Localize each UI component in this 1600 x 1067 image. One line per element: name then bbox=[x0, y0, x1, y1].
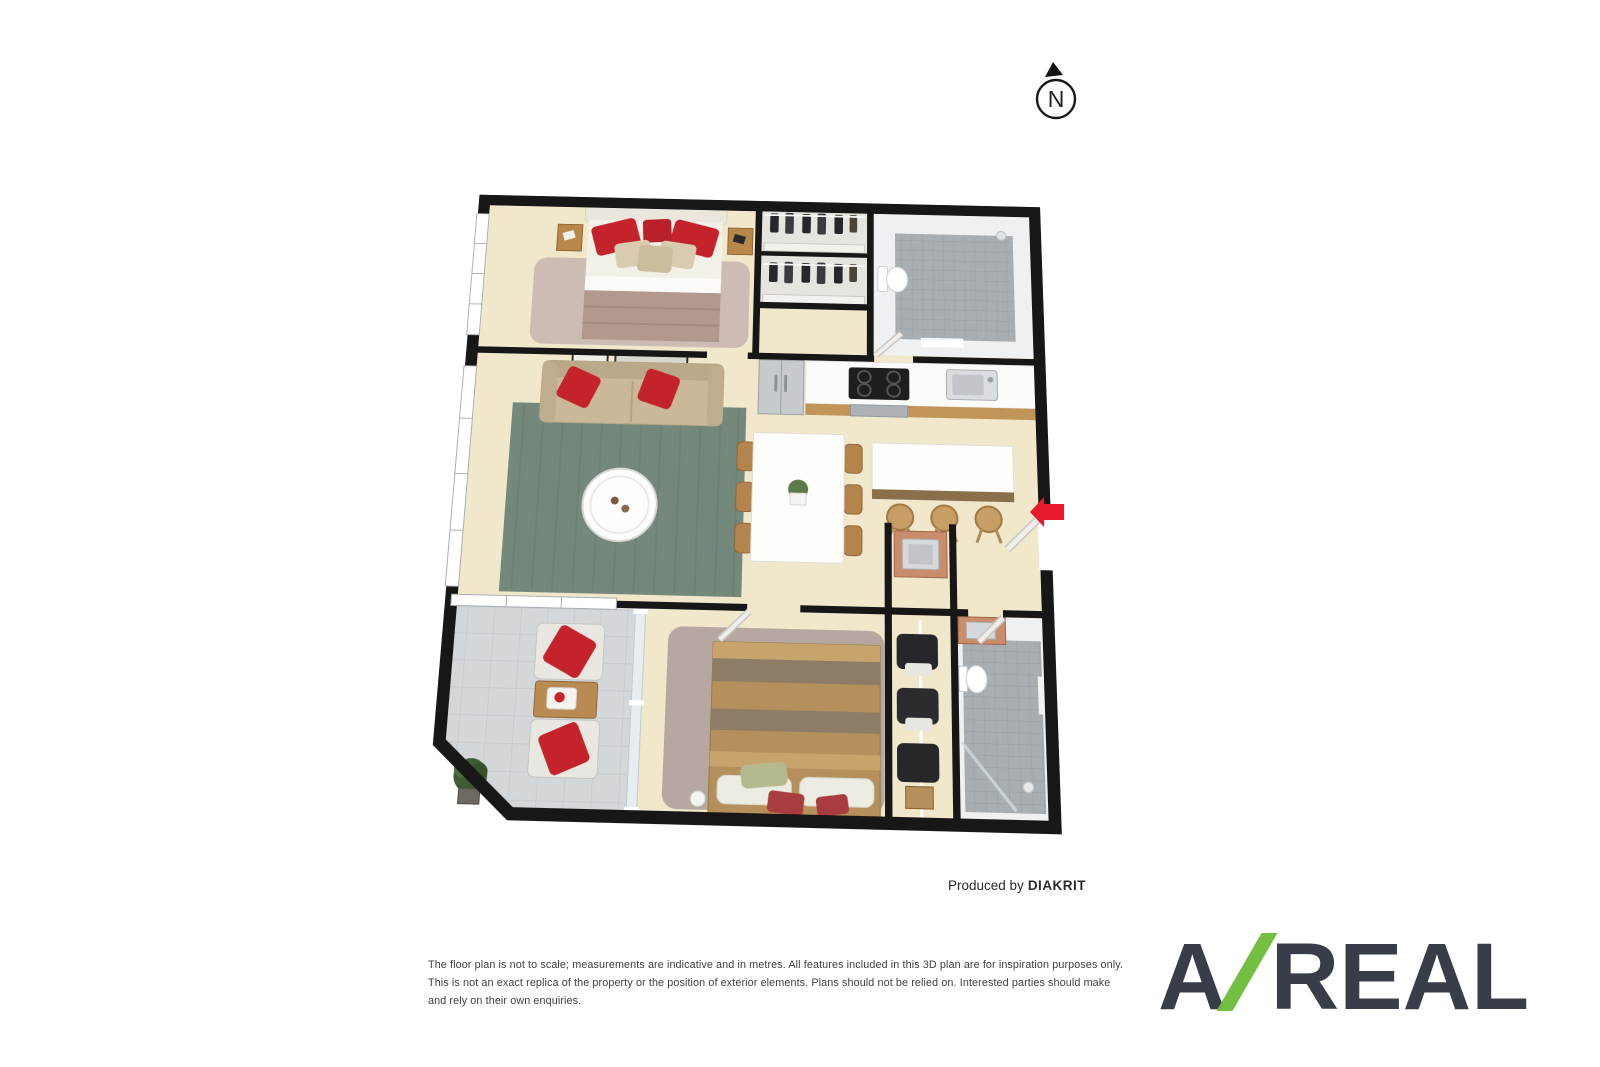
floor-lamp-icon bbox=[690, 791, 705, 807]
toilet-icon bbox=[887, 267, 908, 292]
bedroom-1 bbox=[529, 205, 754, 349]
kitchen bbox=[758, 360, 1040, 421]
compass-north-arrow-icon bbox=[1045, 62, 1063, 77]
shower-head-icon bbox=[1023, 782, 1034, 793]
credit-brand: DIAKRIT bbox=[1028, 878, 1086, 893]
compass-label: N bbox=[1048, 86, 1065, 112]
disclaimer-line-1: The floor plan is not to scale; measurem… bbox=[428, 956, 1128, 974]
dining-chair bbox=[844, 526, 862, 556]
brand-logo: A REAL bbox=[1158, 930, 1529, 1025]
credit-prefix: Produced by bbox=[948, 878, 1024, 893]
cooktop-icon bbox=[849, 367, 910, 400]
dining-area bbox=[734, 432, 862, 564]
disclaimer: The floor plan is not to scale; measurem… bbox=[428, 956, 1128, 1010]
toilet-icon bbox=[966, 665, 987, 693]
sink-icon bbox=[946, 370, 997, 401]
bed-2 bbox=[708, 642, 880, 819]
shower-head-icon bbox=[996, 231, 1006, 240]
credit-line: Produced byDIAKRIT bbox=[948, 878, 1086, 893]
bathroom-2 bbox=[956, 617, 1053, 823]
entry-arrow-icon bbox=[1030, 497, 1064, 527]
disclaimer-line-2: This is not an exact replica of the prop… bbox=[428, 974, 1128, 1010]
sofa bbox=[539, 360, 724, 426]
north-compass: N bbox=[1030, 60, 1082, 124]
dining-chair bbox=[844, 444, 862, 473]
logo-letters-real: REAL bbox=[1271, 930, 1530, 1025]
dining-chair bbox=[844, 485, 862, 515]
kitchen-island bbox=[872, 443, 1015, 544]
laundry-nook bbox=[894, 531, 947, 578]
wardrobe-door bbox=[764, 243, 865, 253]
floor-plan bbox=[424, 193, 1064, 841]
bedroom-2 bbox=[661, 626, 884, 819]
oven-icon bbox=[850, 405, 907, 418]
